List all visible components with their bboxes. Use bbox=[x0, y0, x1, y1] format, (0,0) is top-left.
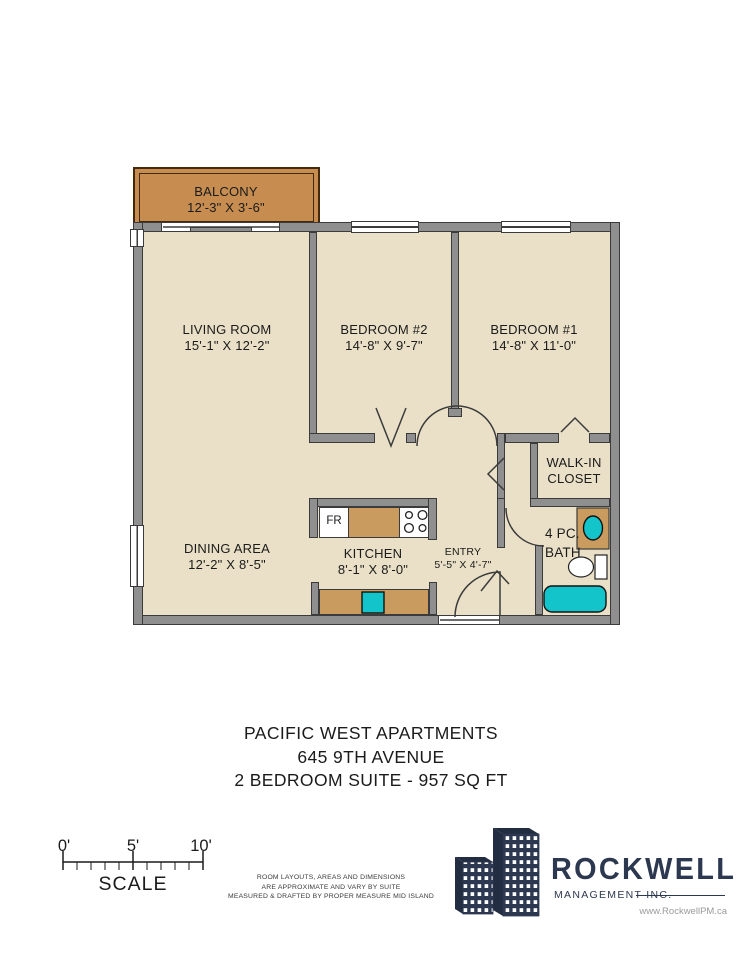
wall-kitchen-stub-bottomleft bbox=[311, 582, 319, 615]
bedroom1-window bbox=[501, 221, 571, 233]
scale-ruler bbox=[52, 835, 222, 875]
kitchen-counter-bottom bbox=[319, 589, 429, 615]
wall-kitchen-stub-topleft bbox=[309, 498, 318, 538]
kitchen-label: KITCHEN 8'-1" X 8'-0" bbox=[338, 546, 408, 578]
wall-hallway-vertical bbox=[497, 433, 505, 500]
dining-area-label: DINING AREA 12'-2" X 8'-5" bbox=[184, 541, 270, 573]
room-name: WALK-IN bbox=[546, 455, 601, 471]
wall-bath-top bbox=[530, 498, 610, 507]
scale-label: SCALE bbox=[99, 873, 168, 896]
wall-bath-left bbox=[535, 545, 543, 615]
room-dims: 5'-5" X 4'-7" bbox=[434, 559, 491, 572]
walkin-closet-label: WALK-IN CLOSET bbox=[546, 455, 601, 487]
scale-bar: 0' 5' 10' SCALE bbox=[52, 835, 222, 899]
dining-window bbox=[130, 525, 144, 587]
room-dims: 14'-8" X 9'-7" bbox=[340, 338, 427, 354]
room-dims: 12'-2" X 8'-5" bbox=[184, 557, 270, 573]
room-dims: 12'-3" X 3'-6" bbox=[187, 200, 265, 216]
room-name: BEDROOM #1 bbox=[490, 322, 577, 338]
room-name: KITCHEN bbox=[338, 546, 408, 562]
bedroom2-label: BEDROOM #2 14'-8" X 9'-7" bbox=[340, 322, 427, 354]
disclaimer-line: MEASURED & DRAFTED BY PROPER MEASURE MID… bbox=[215, 892, 447, 902]
stove bbox=[399, 507, 429, 538]
wall-closet-left bbox=[530, 443, 538, 500]
floorplan-page: FR BALCONY bbox=[0, 0, 742, 960]
room-name: BALCONY bbox=[187, 184, 265, 200]
bath-label: 4 PC. BATH bbox=[545, 524, 581, 562]
wall-exterior-bottom bbox=[133, 615, 620, 625]
room-dims: 8'-1" X 8'-0" bbox=[338, 562, 408, 578]
living-room-label: LIVING ROOM 15'-1" X 12'-2" bbox=[183, 322, 272, 354]
room-name: 4 PC. bbox=[545, 524, 581, 543]
sliding-door-panel bbox=[190, 227, 252, 232]
living-room-window bbox=[130, 229, 144, 247]
wall-hall-bath bbox=[497, 498, 505, 548]
company-website: www.RockwellPM.ca bbox=[555, 906, 727, 917]
wall-bedroom2-bottom-left bbox=[309, 433, 375, 443]
disclaimer-line: ARE APPROXIMATE AND VARY BY SUITE bbox=[215, 883, 447, 893]
wall-living-bedroom2 bbox=[309, 232, 317, 443]
wall-bedroom-divider-cap bbox=[448, 408, 462, 417]
room-name: ENTRY bbox=[434, 546, 491, 559]
wall-bedroom1-bottom-right bbox=[589, 433, 610, 443]
kitchen-counter-top bbox=[348, 507, 400, 538]
company-name: ROCKWELL bbox=[551, 851, 736, 887]
disclaimer: ROOM LAYOUTS, AREAS AND DIMENSIONS ARE A… bbox=[215, 873, 447, 902]
room-dims: 15'-1" X 12'-2" bbox=[183, 338, 272, 354]
entry-door-opening bbox=[438, 615, 500, 625]
entry-label: ENTRY 5'-5" X 4'-7" bbox=[434, 546, 491, 572]
bedroom1-label: BEDROOM #1 14'-8" X 11'-0" bbox=[490, 322, 577, 354]
wall-exterior-right bbox=[610, 222, 620, 625]
balcony-label: BALCONY 12'-3" X 3'-6" bbox=[187, 184, 265, 216]
room-name: LIVING ROOM bbox=[183, 322, 272, 338]
wall-kitchen-stub-topright bbox=[428, 498, 437, 540]
suite-description: 2 BEDROOM SUITE - 957 SQ FT bbox=[0, 769, 742, 793]
wall-kitchen-stub-bottomright bbox=[429, 582, 437, 615]
room-dims: 14'-8" X 11'-0" bbox=[490, 338, 577, 354]
disclaimer-line: ROOM LAYOUTS, AREAS AND DIMENSIONS bbox=[215, 873, 447, 883]
fridge-label: FR bbox=[320, 515, 348, 527]
wall-kitchen-top bbox=[309, 498, 437, 507]
fridge: FR bbox=[319, 507, 349, 538]
room-name: BEDROOM #2 bbox=[340, 322, 427, 338]
room-name: CLOSET bbox=[546, 471, 601, 487]
building-name: PACIFIC WEST APARTMENTS bbox=[0, 722, 742, 746]
buildings-icon bbox=[455, 818, 547, 922]
title-block: PACIFIC WEST APARTMENTS 645 9TH AVENUE 2… bbox=[0, 722, 742, 793]
wall-bedroom2-bottom-right bbox=[406, 433, 416, 443]
room-name: DINING AREA bbox=[184, 541, 270, 557]
wall-bedroom1-bedroom2 bbox=[451, 232, 459, 417]
building-address: 645 9TH AVENUE bbox=[0, 746, 742, 770]
wall-bedroom1-bottom-left bbox=[505, 433, 559, 443]
company-logo: ROCKWELL MANAGEMENT INC. www.RockwellPM.… bbox=[455, 814, 740, 932]
logo-divider-line bbox=[636, 895, 725, 896]
room-name: BATH bbox=[545, 543, 581, 562]
bedroom2-window bbox=[351, 221, 419, 233]
